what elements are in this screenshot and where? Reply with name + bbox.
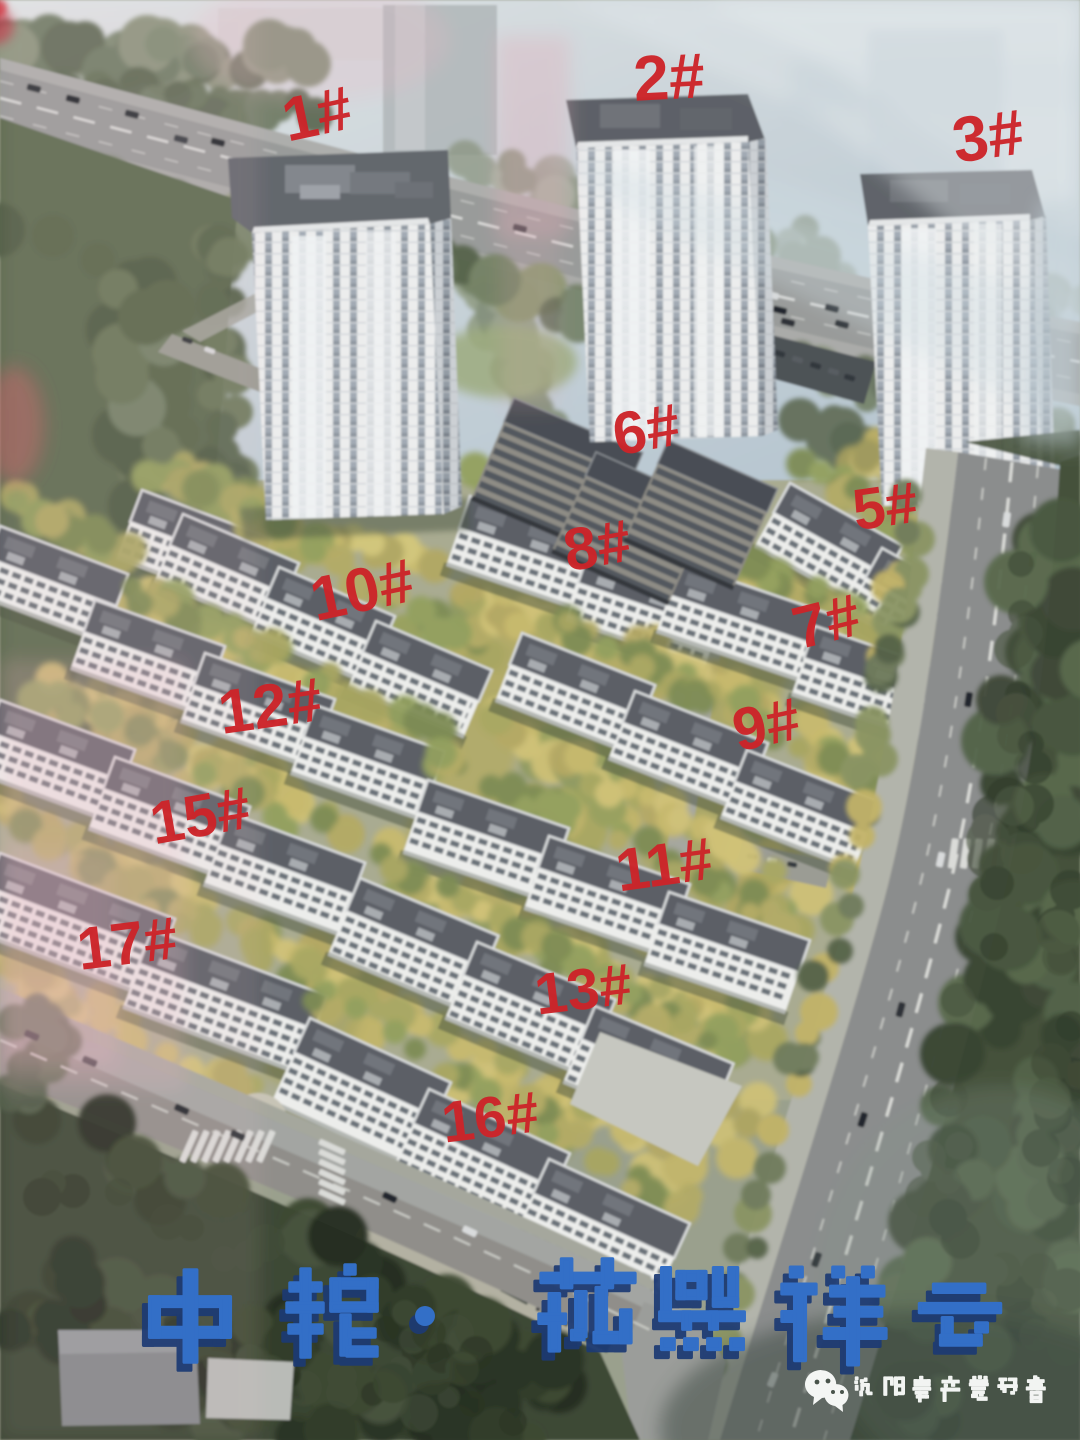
svg-text:6#: 6# [607, 391, 684, 469]
svg-text:13#: 13# [531, 951, 635, 1027]
svg-text:17#: 17# [73, 904, 181, 983]
svg-text:9#: 9# [726, 685, 805, 764]
svg-text:1#: 1# [276, 74, 358, 156]
svg-text:3#: 3# [948, 95, 1029, 176]
svg-text:8#: 8# [558, 507, 635, 585]
svg-text:12#: 12# [214, 665, 326, 748]
svg-text:5#: 5# [849, 470, 922, 543]
svg-text:11#: 11# [611, 825, 716, 905]
svg-text:16#: 16# [438, 1079, 542, 1155]
svg-text:2#: 2# [632, 39, 707, 115]
